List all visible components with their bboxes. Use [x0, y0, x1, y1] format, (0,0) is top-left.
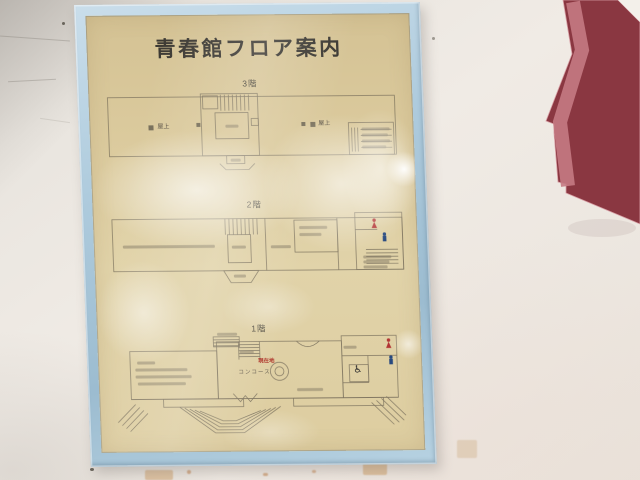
- concourse-label: コンコース: [238, 370, 270, 376]
- illegible-label-smudge: [362, 145, 386, 148]
- illegible-label-smudge: [232, 246, 246, 249]
- female-toilet-icon: [386, 338, 392, 348]
- left-outdoor-stairs: [118, 404, 149, 431]
- map-symbol: [310, 122, 315, 127]
- stairs-hatch: [225, 218, 258, 234]
- right-outdoor-stairs: [371, 396, 406, 424]
- illegible-label-smudge: [138, 382, 186, 385]
- staircase-highlight-face: [560, 2, 582, 186]
- stain-speck: [187, 470, 191, 474]
- illegible-label-smudge: [225, 125, 238, 128]
- wall-speck: [62, 22, 65, 25]
- illegible-label-smudge: [297, 388, 323, 391]
- tape-residue: [145, 470, 173, 480]
- floor1-plan: [107, 328, 415, 449]
- map-symbol: [148, 125, 153, 130]
- wall-speck: [432, 37, 435, 40]
- wall-crack: [40, 118, 70, 123]
- stairs-hatch: [352, 128, 359, 152]
- illegible-label-smudge: [362, 127, 390, 130]
- you-are-here-marker: 現在地: [258, 359, 275, 365]
- illegible-label-smudge: [240, 351, 254, 354]
- staircase-shadow: [568, 219, 636, 237]
- illegible-label-smudge: [299, 226, 327, 229]
- male-toilet-icon: [383, 232, 387, 241]
- red-staircase-structure: [530, 0, 640, 240]
- wall-speck: [90, 468, 94, 471]
- door-mark: [301, 122, 305, 126]
- rooftop-right-label: 屋上: [318, 121, 330, 127]
- floor-guide-sign-frame: 青春館フロア案内 3階: [74, 2, 437, 467]
- floor2-plan: [104, 203, 407, 298]
- wall-corner: [618, 0, 640, 22]
- illegible-label-smudge: [271, 245, 291, 248]
- illegible-label-smudge: [136, 375, 192, 378]
- illegible-label-smudge: [364, 265, 388, 268]
- stain-speck: [263, 473, 268, 476]
- wall-crack: [0, 36, 70, 42]
- male-toilet-icon: [389, 355, 393, 364]
- illegible-label-smudge: [234, 275, 246, 278]
- door-mark: [196, 123, 200, 127]
- wall-crack: [8, 79, 56, 83]
- illegible-label-smudge: [344, 346, 357, 349]
- rooftop-left-label: 屋上: [157, 124, 169, 130]
- staircase-dark-face: [546, 0, 640, 224]
- entrance-notch: [233, 394, 257, 402]
- female-toilet-icon: [371, 218, 377, 228]
- sign-title: 青春館フロア案内: [86, 31, 411, 64]
- illegible-label-smudge: [135, 368, 187, 371]
- photo-of-floor-guide-sign: 青春館フロア案内 3階: [0, 0, 640, 480]
- illegible-label-smudge: [363, 255, 391, 258]
- illegible-label-smudge: [231, 159, 241, 162]
- illegible-label-smudge: [363, 260, 389, 263]
- illegible-label-smudge: [299, 233, 321, 236]
- illegible-label-smudge: [137, 361, 155, 364]
- illegible-label-smudge: [362, 139, 390, 142]
- floor-guide-paper: 青春館フロア案内 3階: [85, 13, 425, 453]
- stain-speck: [312, 470, 316, 473]
- wheelchair-icon: ♿: [353, 366, 362, 376]
- illegible-label-smudge: [362, 133, 388, 136]
- tape-residue: [457, 440, 477, 458]
- floor3-plan: [100, 83, 403, 174]
- illegible-label-smudge: [217, 333, 237, 336]
- canopy-hatch: [213, 340, 239, 346]
